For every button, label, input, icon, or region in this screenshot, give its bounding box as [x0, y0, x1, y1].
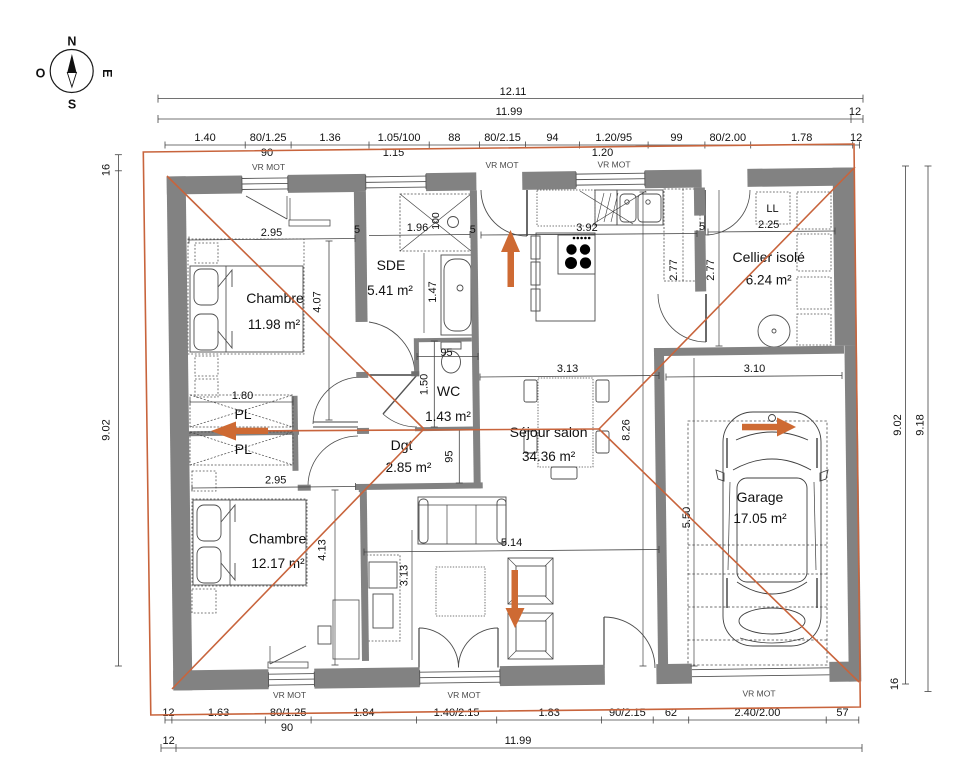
svg-text:99: 99: [670, 132, 682, 144]
svg-text:S: S: [68, 98, 76, 112]
svg-text:VR MOT: VR MOT: [742, 689, 775, 699]
svg-text:5: 5: [470, 224, 476, 236]
svg-text:11.99: 11.99: [505, 735, 532, 747]
svg-text:2.77: 2.77: [705, 259, 717, 280]
svg-text:8.26: 8.26: [621, 419, 633, 440]
svg-text:57: 57: [836, 707, 848, 719]
svg-text:12.11: 12.11: [500, 86, 527, 98]
svg-text:100: 100: [430, 212, 442, 230]
svg-text:90: 90: [281, 722, 293, 734]
svg-text:1.47: 1.47: [427, 281, 439, 302]
svg-text:3.13: 3.13: [399, 565, 411, 586]
svg-text:VR MOT: VR MOT: [252, 162, 285, 172]
svg-text:17.05 m²: 17.05 m²: [733, 511, 787, 526]
svg-text:9.02: 9.02: [892, 414, 904, 435]
svg-text:2.77: 2.77: [668, 259, 680, 280]
svg-text:1.43 m²: 1.43 m²: [425, 409, 471, 424]
svg-text:9.18: 9.18: [915, 414, 927, 435]
svg-text:1.36: 1.36: [319, 132, 340, 144]
svg-text:2.95: 2.95: [265, 475, 286, 487]
svg-text:Garage: Garage: [737, 489, 784, 505]
svg-text:1.83: 1.83: [538, 707, 559, 719]
svg-text:11.99: 11.99: [496, 106, 523, 118]
svg-text:Chambre: Chambre: [246, 290, 304, 306]
svg-text:80/2.00: 80/2.00: [709, 132, 746, 144]
svg-text:1.40: 1.40: [194, 132, 215, 144]
svg-text:1.78: 1.78: [791, 132, 812, 144]
svg-text:88: 88: [448, 132, 460, 144]
svg-text:95: 95: [440, 347, 452, 359]
svg-text:VR MOT: VR MOT: [447, 690, 480, 700]
svg-text:5: 5: [699, 221, 705, 233]
svg-text:WC: WC: [437, 383, 460, 399]
svg-text:3.10: 3.10: [744, 363, 765, 375]
svg-text:1.20: 1.20: [592, 147, 613, 159]
svg-text:5.41 m²: 5.41 m²: [367, 283, 413, 298]
svg-text:5: 5: [354, 224, 360, 236]
svg-text:1.63: 1.63: [208, 707, 229, 719]
svg-text:N: N: [67, 35, 76, 49]
svg-text:Chambre: Chambre: [249, 531, 307, 547]
svg-text:34.36 m²: 34.36 m²: [522, 449, 576, 464]
svg-text:16: 16: [101, 164, 113, 176]
svg-text:PL: PL: [235, 441, 252, 457]
svg-text:11.98 m²: 11.98 m²: [248, 317, 301, 332]
svg-text:16: 16: [889, 678, 901, 690]
svg-text:Séjour salon: Séjour salon: [510, 424, 588, 440]
svg-text:Cellier isolé: Cellier isolé: [733, 249, 806, 265]
svg-text:1.20/95: 1.20/95: [595, 132, 632, 144]
svg-text:6.24 m²: 6.24 m²: [746, 273, 792, 288]
svg-text:94: 94: [546, 132, 558, 144]
svg-text:12: 12: [162, 735, 174, 747]
svg-text:VR MOT: VR MOT: [273, 690, 306, 700]
svg-text:LL: LL: [766, 203, 778, 215]
svg-text:3.92: 3.92: [576, 222, 597, 234]
svg-text:9.02: 9.02: [101, 419, 113, 440]
svg-text:4.07: 4.07: [312, 291, 324, 312]
svg-text:1.40/2.15: 1.40/2.15: [434, 707, 480, 719]
svg-text:5.14: 5.14: [501, 537, 522, 549]
svg-text:VR MOT: VR MOT: [597, 160, 630, 170]
svg-text:2.95: 2.95: [261, 227, 282, 239]
svg-text:95: 95: [443, 450, 455, 462]
svg-text:12: 12: [849, 106, 861, 118]
svg-text:80/2.15: 80/2.15: [484, 132, 521, 144]
svg-text:VR MOT: VR MOT: [485, 160, 518, 170]
svg-text:12: 12: [850, 132, 862, 144]
svg-text:4.13: 4.13: [317, 539, 329, 560]
svg-text:12: 12: [162, 707, 174, 719]
svg-text:3.13: 3.13: [557, 363, 578, 375]
svg-text:1.05/100: 1.05/100: [378, 132, 421, 144]
svg-text:80/1.25: 80/1.25: [250, 132, 287, 144]
svg-text:1.50: 1.50: [419, 374, 431, 395]
svg-text:1.80: 1.80: [232, 390, 253, 402]
svg-text:12.17 m²: 12.17 m²: [251, 556, 305, 571]
svg-text:O: O: [36, 67, 46, 81]
svg-text:SDE: SDE: [377, 257, 406, 273]
svg-text:PL: PL: [234, 406, 251, 422]
svg-text:E: E: [100, 69, 114, 77]
svg-text:2.25: 2.25: [758, 219, 779, 231]
svg-text:1.96: 1.96: [407, 222, 428, 234]
svg-text:90: 90: [261, 147, 273, 159]
